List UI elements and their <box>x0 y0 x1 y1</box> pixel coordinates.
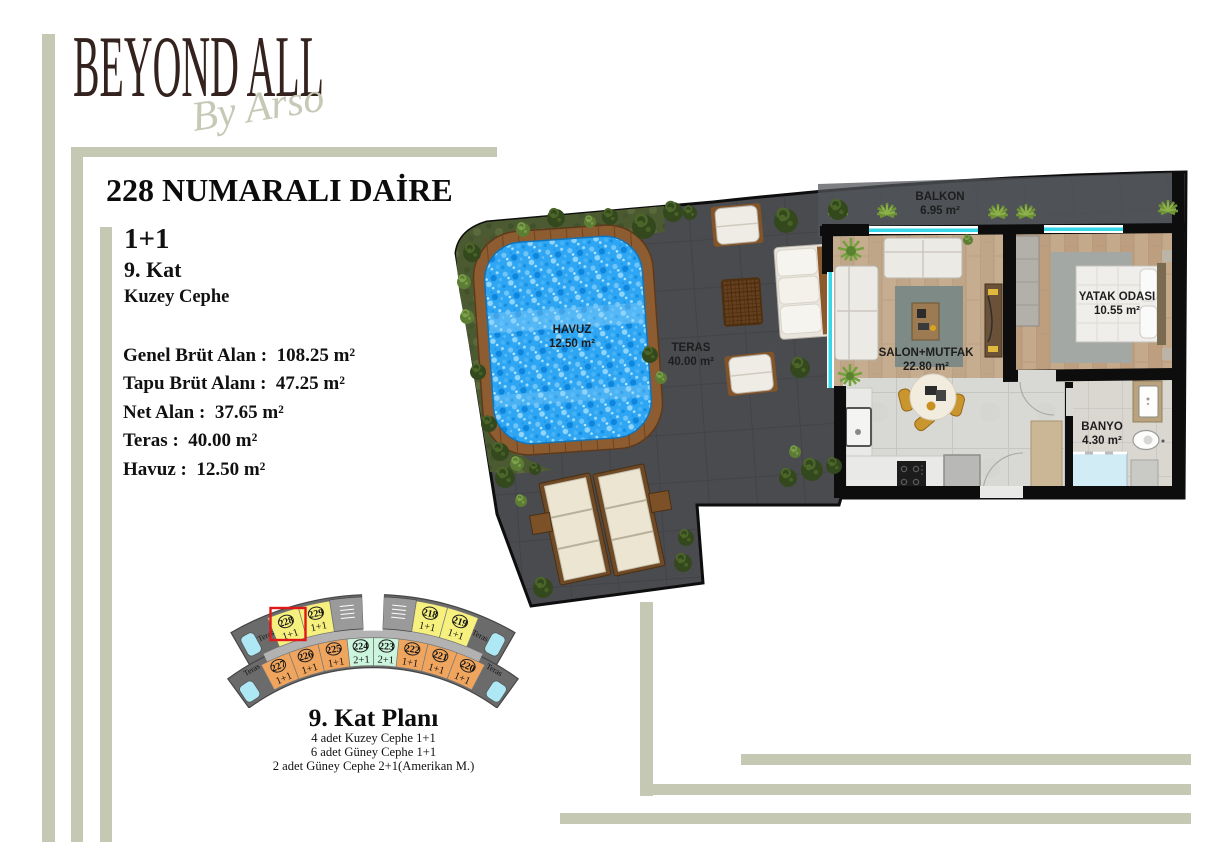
svg-text:223: 223 <box>379 641 395 653</box>
svg-text:224: 224 <box>353 641 369 653</box>
svg-text:BALKON: BALKON <box>915 191 964 203</box>
svg-text:TERAS: TERAS <box>672 342 711 354</box>
svg-text:BANYO: BANYO <box>1081 421 1123 433</box>
svg-text:12.50 m²: 12.50 m² <box>549 338 595 350</box>
svg-text:22.80 m²: 22.80 m² <box>903 361 949 373</box>
svg-text:6.95 m²: 6.95 m² <box>920 205 960 217</box>
svg-text:10.55 m²: 10.55 m² <box>1094 305 1140 317</box>
svg-text:SALON+MUTFAK: SALON+MUTFAK <box>879 347 975 359</box>
svg-text:YATAK ODASI: YATAK ODASI <box>1079 291 1155 303</box>
svg-text:2+1: 2+1 <box>377 655 394 667</box>
svg-text:2+1: 2+1 <box>353 654 370 666</box>
svg-text:4.30 m²: 4.30 m² <box>1082 435 1122 447</box>
svg-text:40.00 m²: 40.00 m² <box>668 356 714 368</box>
svg-text:HAVUZ: HAVUZ <box>553 324 592 336</box>
